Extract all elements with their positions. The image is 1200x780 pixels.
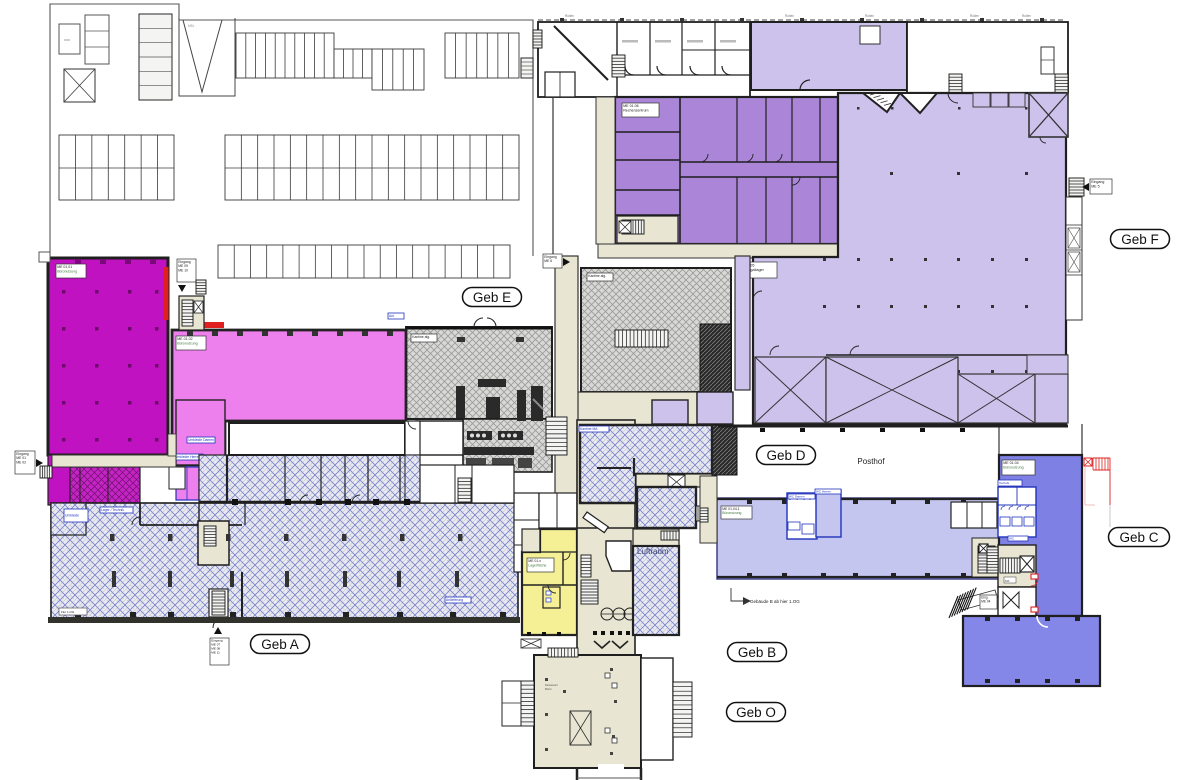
svg-text:Bistro: Bistro xyxy=(545,687,552,691)
svg-text:Rollen: Rollen xyxy=(1022,14,1031,18)
svg-text:Umkleide Damen: Umkleide Damen xyxy=(188,438,214,442)
svg-text:Geb F: Geb F xyxy=(1121,232,1159,247)
svg-text:Büronutzung: Büronutzung xyxy=(722,511,741,515)
svg-text:Lagerfläche: Lagerfläche xyxy=(528,563,546,567)
svg-text:Posthof: Posthof xyxy=(857,457,885,466)
svg-text:Restaurant: Restaurant xyxy=(545,683,558,687)
svg-text:ME 01.06: ME 01.06 xyxy=(623,104,638,108)
svg-text:Technik: Technik xyxy=(999,481,1010,485)
svg-text:WC Damen: WC Damen xyxy=(789,495,805,499)
svg-text:ME 10: ME 10 xyxy=(178,268,188,272)
svg-text:Eingang: Eingang xyxy=(1091,180,1104,184)
svg-text:WC Herren: WC Herren xyxy=(816,490,831,494)
svg-text:Geb D: Geb D xyxy=(766,448,805,463)
svg-text:Kantine MA: Kantine MA xyxy=(580,427,598,431)
svg-text:Kantine alg.: Kantine alg. xyxy=(412,335,430,339)
svg-text:Anl.: Anl. xyxy=(389,314,395,318)
svg-text:Umkleide Herren: Umkleide Herren xyxy=(175,455,201,459)
svg-text:Umkleide: Umkleide xyxy=(65,514,79,518)
svg-text:Büronutzung: Büronutzung xyxy=(57,269,77,273)
svg-text:Anlieferung: Anlieferung xyxy=(446,598,463,602)
svg-text:ME 01.04: ME 01.04 xyxy=(1003,461,1018,465)
svg-text:Büronutzung: Büronutzung xyxy=(1003,466,1023,470)
svg-text:Kantine alg.: Kantine alg. xyxy=(588,274,606,278)
svg-text:ME 5: ME 5 xyxy=(1091,185,1099,189)
svg-text:ME 6: ME 6 xyxy=(544,259,552,263)
svg-text:ME 04: ME 04 xyxy=(981,600,990,604)
svg-text:Geb B: Geb B xyxy=(738,645,776,660)
svg-text:Lager / Technik: Lager / Technik xyxy=(101,508,124,512)
svg-text:WC: WC xyxy=(1009,537,1015,541)
svg-text:Rollen: Rollen xyxy=(565,14,574,18)
svg-text:Gebäude B ab hier 1.OG: Gebäude B ab hier 1.OG xyxy=(750,599,800,604)
svg-text:MBL: MBL xyxy=(188,24,195,28)
svg-text:Rollen: Rollen xyxy=(865,14,874,18)
svg-text:Geb C: Geb C xyxy=(1119,530,1158,545)
svg-text:Büronutzung: Büronutzung xyxy=(177,342,197,346)
svg-text:Geb E: Geb E xyxy=(473,290,511,305)
svg-text:Luftraum: Luftraum xyxy=(637,547,669,556)
svg-text:Rechenzentrum: Rechenzentrum xyxy=(623,109,648,113)
svg-text:Geb A: Geb A xyxy=(261,637,299,652)
svg-text:Rollen: Rollen xyxy=(785,14,794,18)
svg-text:ME 01.02: ME 01.02 xyxy=(177,337,192,341)
svg-text:Flur 1.OG: Flur 1.OG xyxy=(61,610,75,614)
svg-text:Rollen: Rollen xyxy=(970,14,979,18)
svg-text:ME 02: ME 02 xyxy=(16,460,26,464)
svg-text:Geb O: Geb O xyxy=(736,705,776,720)
svg-text:ME 11: ME 11 xyxy=(211,650,220,654)
svg-text:MX: MX xyxy=(1005,579,1010,583)
